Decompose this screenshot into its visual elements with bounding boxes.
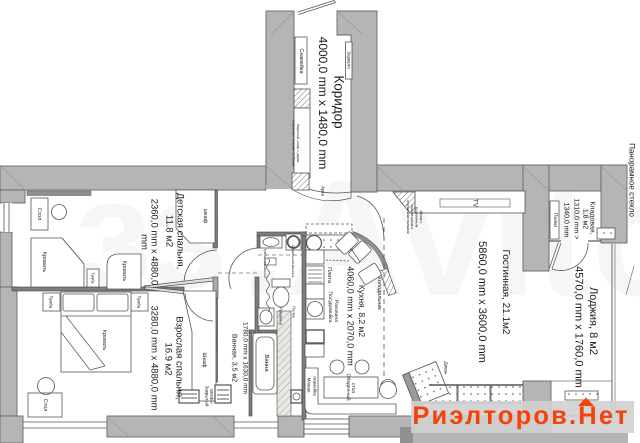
svg-text:TV: TV (472, 199, 479, 208)
svg-text:mm: mm (139, 234, 150, 250)
svg-text:11.8 м2: 11.8 м2 (164, 215, 175, 247)
svg-text:Тумба: Тумба (91, 272, 96, 284)
svg-text:Зеркало: Зеркало (347, 51, 352, 69)
svg-text:Раковина: Раковина (279, 307, 284, 325)
svg-text:скамейка: скамейка (313, 376, 318, 396)
svg-text:Кухня, 8,2 м2: Кухня, 8,2 м2 (357, 285, 367, 337)
svg-text:1,8 м2: 1,8 м2 (582, 209, 589, 229)
svg-text:стол: стол (350, 383, 356, 393)
svg-text:Кровать: Кровать (121, 261, 127, 282)
svg-text:Тумба с раковиной: Тумба с раковиной (263, 248, 267, 278)
svg-text:Плита: Плита (326, 267, 332, 284)
svg-text:Тумба: Тумба (49, 296, 54, 309)
svg-text:1310,0 mm >: 1310,0 mm > (573, 198, 580, 239)
svg-text:3280,0 mm x 4880,0 mm: 3280,0 mm x 4880,0 mm (149, 305, 160, 410)
svg-text:16.9 м2: 16.9 м2 (163, 343, 174, 376)
svg-text:Раковина: Раковина (333, 300, 339, 322)
svg-text:Закрытый: Закрытый (205, 386, 210, 407)
svg-text:4570,0 mm x 1760,0 mm: 4570,0 mm x 1760,0 mm (573, 266, 585, 388)
svg-text:Холодильник: Холодильник (376, 276, 382, 310)
svg-text:4060,0 mm x 2070,0 mm: 4060,0 mm x 2070,0 mm (346, 266, 356, 366)
svg-text:Стол: Стол (36, 208, 42, 221)
svg-text:Кровать: Кровать (41, 252, 47, 273)
svg-text:Стол: Стол (42, 399, 48, 412)
svg-text:Коридор: Коридор (332, 75, 347, 128)
svg-text:Детская спальня,: Детская спальня, (175, 193, 186, 270)
svg-text:встроенным: встроенным (415, 207, 419, 228)
svg-text:1780,0 mm x 1630,0 mm: 1780,0 mm x 1630,0 mm (242, 322, 249, 394)
svg-text:Взрослая спальня,: Взрослая спальня, (174, 316, 185, 399)
svg-text:Арка: Арка (321, 186, 326, 197)
svg-text:Диван: Диван (444, 362, 449, 375)
svg-text:телевизором и: телевизором и (410, 205, 414, 230)
svg-text:Гостинная, 21.1м2: Гостинная, 21.1м2 (500, 250, 511, 335)
svg-text:открытыми полками по бокам: открытыми полками по бокам (292, 120, 296, 167)
svg-text:Посудомойка: Посудомойка (327, 292, 333, 323)
svg-text:Кладовая,: Кладовая, (589, 201, 596, 234)
svg-text:1340,0 mm: 1340,0 mm (563, 202, 570, 237)
svg-text:Шкаф с: Шкаф с (419, 211, 423, 224)
svg-text:Риэлторов.Нет: Риэлторов.Нет (412, 402, 629, 430)
svg-text:Шкаф: Шкаф (201, 352, 207, 368)
svg-text:Кровать: Кровать (101, 330, 107, 351)
svg-text:шкафы: шкафы (210, 388, 215, 403)
svg-text:Скамейка: Скамейка (298, 48, 305, 74)
svg-text:Ванная, 3,5 м2: Ванная, 3,5 м2 (231, 334, 238, 382)
svg-text:Тумба: Тумба (137, 296, 142, 309)
svg-text:Панорамное стекло: Панорамное стекло (628, 143, 637, 217)
svg-text:5860,0 mm x 3600,0 mm: 5860,0 mm x 3600,0 mm (476, 241, 488, 363)
svg-text:Лоджия, 8 м2: Лоджия, 8 м2 (587, 287, 599, 355)
svg-text:Закрытый шкаф с двумя: Закрытый шкаф с двумя (296, 124, 300, 163)
svg-text:Мягкая: Мягкая (307, 378, 312, 393)
svg-text:4000,0 mm x 1480,0 mm: 4000,0 mm x 1480,0 mm (316, 37, 330, 170)
svg-text:открытыми полками: открытыми полками (406, 200, 410, 234)
svg-text:Полка: Полка (292, 306, 297, 318)
svg-text:Ванна: Ванна (263, 354, 270, 372)
svg-text:шкаф: шкаф (202, 209, 208, 224)
svg-text:Стиральная машина: Стиральная машина (291, 245, 295, 278)
svg-text:Полки: Полки (552, 213, 558, 227)
